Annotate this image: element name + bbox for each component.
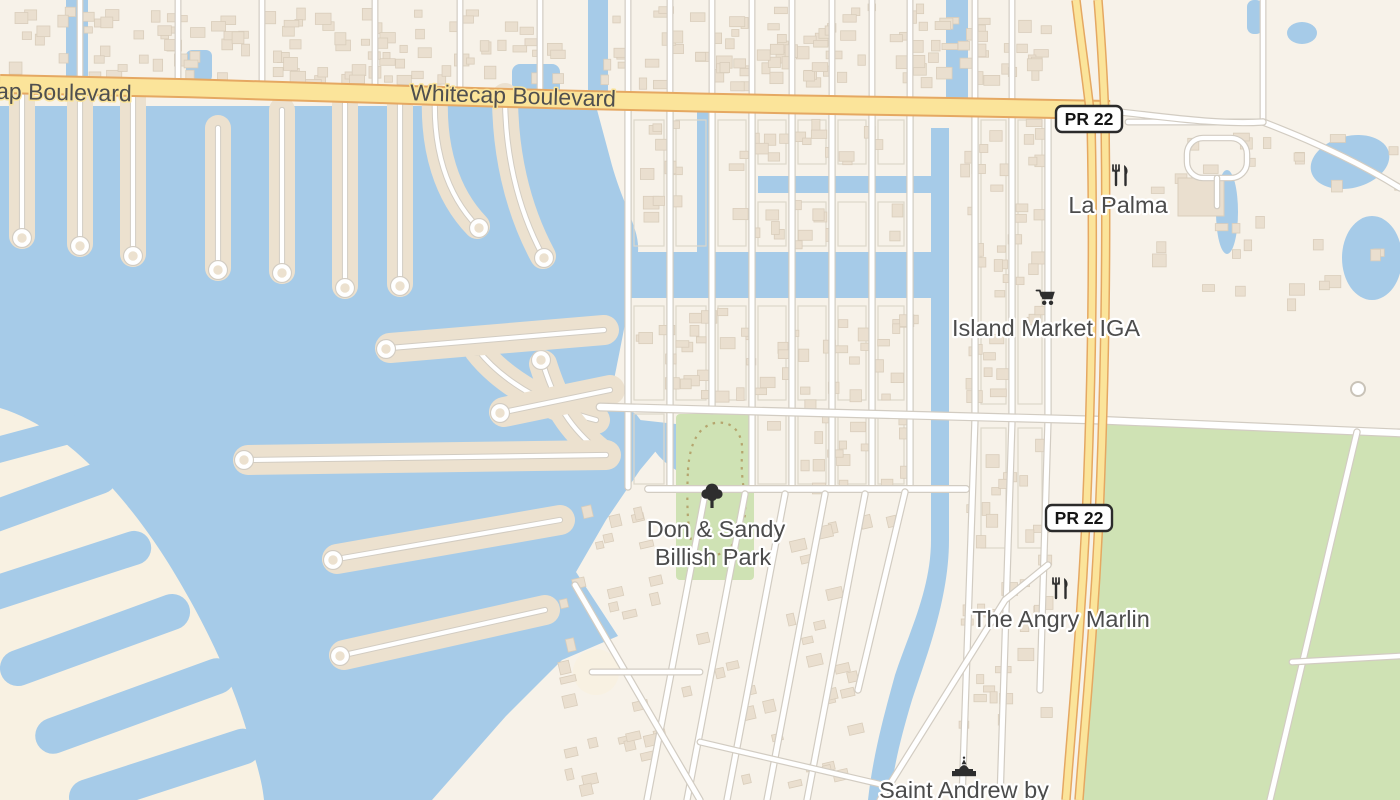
building bbox=[466, 58, 474, 64]
building bbox=[273, 51, 281, 62]
building bbox=[558, 660, 571, 675]
building bbox=[1041, 708, 1052, 718]
building bbox=[601, 75, 609, 85]
building bbox=[997, 246, 1005, 252]
building bbox=[297, 8, 306, 20]
roundabout-dot bbox=[1351, 382, 1365, 396]
building bbox=[798, 230, 812, 240]
building bbox=[715, 667, 726, 678]
building bbox=[768, 153, 779, 161]
building bbox=[190, 28, 204, 38]
building bbox=[505, 22, 517, 31]
building bbox=[805, 400, 816, 409]
building bbox=[835, 346, 848, 353]
building bbox=[734, 59, 746, 68]
building bbox=[1289, 284, 1304, 296]
building bbox=[139, 55, 148, 63]
building bbox=[290, 40, 301, 49]
building bbox=[839, 152, 854, 162]
building bbox=[9, 62, 22, 74]
building bbox=[645, 59, 659, 67]
building bbox=[812, 119, 820, 130]
building bbox=[801, 387, 810, 394]
map-viewport[interactable]: PR 22 PR 22 ap Boulevard Whitecap Boulev… bbox=[0, 0, 1400, 800]
cul-de-sac-loop bbox=[338, 281, 352, 295]
building bbox=[929, 53, 939, 63]
route-shield-north: PR 22 bbox=[1056, 106, 1122, 132]
building bbox=[416, 29, 425, 39]
building bbox=[352, 65, 366, 76]
building bbox=[960, 58, 972, 68]
building bbox=[980, 144, 988, 152]
cul-de-sac-loop bbox=[126, 249, 140, 263]
building bbox=[986, 514, 997, 527]
building bbox=[718, 308, 728, 315]
building bbox=[466, 10, 478, 16]
building bbox=[653, 196, 664, 205]
building bbox=[100, 46, 109, 56]
building bbox=[653, 124, 662, 132]
building bbox=[1016, 204, 1028, 212]
building bbox=[579, 783, 593, 796]
building bbox=[999, 479, 1007, 488]
building bbox=[1294, 153, 1304, 161]
building bbox=[1263, 138, 1270, 149]
building bbox=[1152, 254, 1166, 267]
building bbox=[609, 514, 622, 528]
building bbox=[58, 15, 68, 27]
building bbox=[858, 55, 865, 65]
building bbox=[553, 74, 564, 84]
building bbox=[22, 32, 31, 40]
building bbox=[37, 26, 50, 37]
building bbox=[1024, 135, 1034, 145]
building bbox=[653, 80, 667, 88]
building bbox=[815, 432, 823, 444]
building bbox=[290, 71, 305, 82]
building bbox=[361, 39, 369, 45]
building bbox=[841, 31, 856, 41]
building bbox=[741, 774, 751, 784]
building bbox=[153, 59, 162, 71]
building bbox=[837, 72, 846, 82]
building bbox=[812, 63, 827, 72]
building bbox=[984, 368, 992, 377]
building bbox=[284, 20, 299, 27]
building bbox=[732, 29, 739, 36]
building bbox=[380, 59, 395, 66]
building bbox=[186, 70, 194, 79]
building bbox=[766, 210, 779, 220]
building bbox=[916, 4, 923, 14]
building bbox=[936, 67, 952, 79]
building bbox=[777, 34, 786, 42]
building bbox=[315, 13, 331, 24]
building bbox=[15, 12, 28, 23]
building bbox=[982, 503, 990, 516]
cul-de-sac-loop bbox=[333, 649, 347, 663]
building bbox=[640, 168, 654, 179]
building bbox=[396, 59, 405, 68]
building bbox=[613, 16, 620, 23]
building bbox=[696, 632, 709, 644]
building bbox=[644, 212, 659, 222]
building bbox=[318, 68, 328, 77]
building bbox=[768, 24, 779, 30]
building bbox=[986, 455, 999, 468]
poi-label-island-market[interactable]: Island Market IGA bbox=[952, 315, 1140, 341]
building bbox=[733, 208, 748, 219]
building bbox=[94, 56, 104, 63]
building bbox=[1019, 20, 1032, 32]
building bbox=[484, 66, 495, 79]
building bbox=[913, 40, 923, 52]
building bbox=[680, 379, 691, 389]
building bbox=[1331, 180, 1342, 192]
building bbox=[1319, 281, 1329, 290]
building bbox=[983, 686, 994, 692]
building bbox=[283, 26, 295, 36]
building bbox=[412, 71, 424, 78]
building bbox=[1232, 250, 1240, 259]
cul-de-sac-loop bbox=[393, 279, 407, 293]
building bbox=[696, 52, 706, 60]
cul-de-sac-loop bbox=[326, 553, 340, 567]
building bbox=[232, 32, 244, 44]
building bbox=[976, 536, 985, 548]
cul-de-sac-loop bbox=[73, 239, 87, 253]
building bbox=[588, 737, 599, 748]
building bbox=[397, 75, 411, 84]
route-shield-south: PR 22 bbox=[1046, 505, 1112, 531]
building bbox=[639, 78, 646, 89]
building bbox=[1330, 135, 1345, 143]
building bbox=[882, 394, 891, 400]
route-shield-north-text: PR 22 bbox=[1065, 109, 1114, 129]
building bbox=[151, 11, 160, 22]
building bbox=[1017, 44, 1028, 52]
building bbox=[961, 164, 970, 177]
building bbox=[1256, 216, 1265, 228]
cul-de-sac-loop bbox=[534, 353, 548, 367]
poi-label-billish-park-line2[interactable]: Billish Park bbox=[655, 544, 771, 570]
building bbox=[1203, 165, 1218, 173]
building bbox=[442, 66, 451, 77]
cul-de-sac-loop bbox=[211, 263, 225, 277]
building bbox=[772, 222, 780, 235]
building bbox=[1244, 240, 1251, 251]
building bbox=[813, 209, 824, 221]
building bbox=[763, 699, 777, 713]
building bbox=[731, 82, 745, 91]
building bbox=[1026, 530, 1034, 543]
building bbox=[1032, 252, 1047, 264]
building bbox=[813, 459, 824, 471]
poi-label-angry-marlin[interactable]: The Angry Marlin bbox=[972, 606, 1150, 632]
cul-de-sac-loop bbox=[472, 221, 486, 235]
building bbox=[850, 390, 861, 402]
building bbox=[1157, 242, 1166, 253]
building bbox=[770, 44, 784, 54]
building bbox=[242, 44, 250, 56]
building bbox=[498, 40, 506, 50]
building bbox=[839, 441, 846, 449]
building bbox=[682, 686, 692, 697]
building bbox=[414, 10, 422, 17]
building bbox=[1029, 157, 1037, 165]
building bbox=[991, 185, 1003, 191]
cul-de-sac-loop bbox=[379, 342, 393, 356]
building bbox=[1018, 648, 1034, 660]
building bbox=[851, 422, 866, 432]
building bbox=[942, 43, 958, 49]
building bbox=[273, 67, 283, 76]
building bbox=[1020, 476, 1028, 487]
building bbox=[770, 72, 783, 83]
building bbox=[676, 341, 689, 348]
building bbox=[562, 694, 578, 709]
building bbox=[184, 60, 198, 68]
building bbox=[878, 339, 890, 346]
building bbox=[890, 35, 902, 42]
building bbox=[1202, 285, 1214, 292]
building bbox=[995, 291, 1005, 297]
building bbox=[767, 421, 780, 430]
building bbox=[559, 598, 569, 608]
building bbox=[978, 44, 986, 57]
building bbox=[740, 151, 749, 158]
building bbox=[799, 349, 809, 361]
building bbox=[757, 50, 770, 60]
building bbox=[264, 12, 275, 24]
cul-de-sac-loop bbox=[237, 453, 251, 467]
poi-label-saint-andrew[interactable]: Saint Andrew by bbox=[879, 777, 1049, 800]
building bbox=[913, 55, 925, 67]
building bbox=[974, 694, 986, 701]
building bbox=[849, 357, 859, 364]
building bbox=[890, 231, 900, 241]
building bbox=[696, 337, 706, 343]
building bbox=[211, 22, 225, 32]
building bbox=[400, 45, 407, 52]
poi-label-la-palma[interactable]: La Palma bbox=[1068, 192, 1168, 218]
building bbox=[158, 26, 171, 36]
building bbox=[796, 47, 809, 59]
building bbox=[690, 325, 699, 336]
building bbox=[803, 138, 811, 145]
building bbox=[520, 27, 533, 34]
building bbox=[1371, 249, 1381, 261]
map-canvas[interactable]: PR 22 PR 22 ap Boulevard Whitecap Boulev… bbox=[0, 0, 1400, 800]
building bbox=[795, 241, 802, 249]
building bbox=[1313, 240, 1323, 250]
building bbox=[921, 78, 932, 88]
building bbox=[893, 324, 900, 334]
building bbox=[101, 17, 113, 28]
building bbox=[990, 131, 1002, 142]
building bbox=[892, 204, 903, 217]
building bbox=[994, 260, 1002, 272]
building bbox=[1232, 223, 1240, 233]
building bbox=[814, 40, 828, 47]
building bbox=[608, 602, 619, 612]
building bbox=[690, 13, 705, 22]
building bbox=[891, 373, 903, 383]
building bbox=[59, 54, 68, 63]
building bbox=[760, 377, 775, 387]
building bbox=[737, 388, 745, 401]
building bbox=[839, 320, 848, 328]
building bbox=[1215, 224, 1228, 231]
building bbox=[551, 50, 566, 58]
building bbox=[1041, 26, 1051, 34]
building bbox=[604, 59, 611, 70]
building bbox=[595, 541, 604, 549]
building bbox=[418, 48, 431, 58]
building bbox=[1029, 264, 1038, 275]
building bbox=[990, 389, 1006, 397]
building bbox=[639, 332, 653, 343]
route-shield-south-text: PR 22 bbox=[1055, 508, 1104, 528]
cul-de-sac-loop bbox=[15, 231, 29, 245]
building bbox=[919, 22, 927, 30]
building bbox=[84, 27, 92, 33]
building bbox=[984, 75, 1000, 85]
building bbox=[811, 130, 826, 138]
building bbox=[513, 46, 527, 52]
building bbox=[774, 7, 787, 13]
building bbox=[958, 41, 969, 50]
building bbox=[581, 505, 593, 519]
building bbox=[284, 57, 298, 70]
building bbox=[726, 39, 735, 49]
building bbox=[335, 33, 346, 45]
building bbox=[222, 39, 233, 50]
building bbox=[134, 31, 144, 39]
building bbox=[1027, 59, 1042, 71]
building bbox=[350, 75, 365, 83]
building bbox=[720, 62, 730, 72]
building bbox=[480, 41, 489, 51]
building bbox=[804, 71, 815, 81]
cul-de-sac-loop bbox=[493, 406, 507, 420]
cul-de-sac-loop bbox=[537, 251, 551, 265]
building bbox=[935, 21, 951, 29]
building bbox=[720, 338, 735, 349]
building bbox=[801, 460, 809, 471]
building bbox=[1016, 277, 1024, 284]
building bbox=[603, 533, 614, 543]
building bbox=[754, 143, 768, 154]
building bbox=[614, 48, 625, 57]
building bbox=[1288, 299, 1296, 311]
street-label-boulevard-partial: ap Boulevard bbox=[0, 78, 132, 106]
building bbox=[1236, 286, 1246, 296]
building bbox=[1026, 119, 1042, 126]
building bbox=[730, 17, 745, 27]
building bbox=[990, 692, 997, 703]
building bbox=[931, 40, 940, 51]
building bbox=[977, 675, 984, 684]
building bbox=[843, 15, 856, 23]
poi-label-billish-park-line1[interactable]: Don & Sandy bbox=[647, 516, 786, 542]
cul-de-sac-loop bbox=[275, 266, 289, 280]
building bbox=[984, 353, 996, 360]
building bbox=[1389, 147, 1398, 155]
building bbox=[729, 164, 744, 171]
building bbox=[118, 65, 127, 72]
building bbox=[384, 76, 392, 82]
